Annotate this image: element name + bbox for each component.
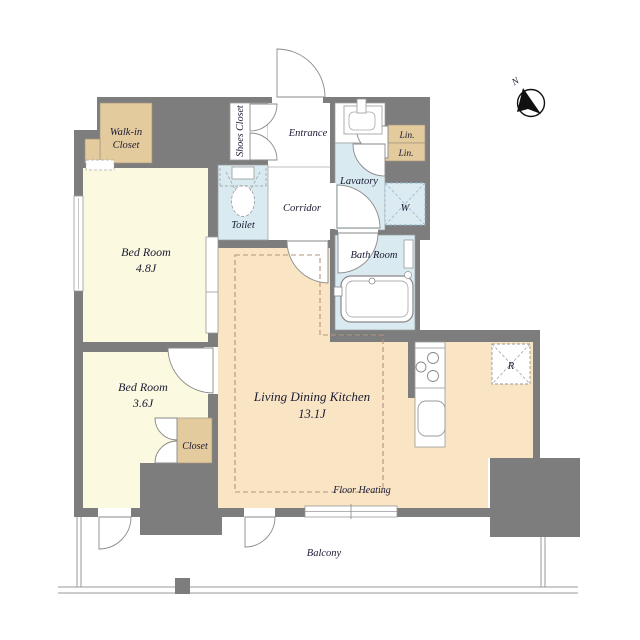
- bedroom2-size-label: 3.6J: [132, 396, 154, 410]
- ldk-balcony-door-opening: [244, 508, 275, 517]
- bath-room-label: Bath Room: [351, 250, 398, 261]
- floor-plan-svg: N Walk-in Closet Bed Room 4.8J Bed Room …: [0, 0, 640, 640]
- bedroom1-name-label: Bed Room: [121, 245, 171, 259]
- entrance-label: Entrance: [288, 128, 328, 139]
- balcony-label: Balcony: [307, 548, 342, 559]
- refrigerator-label: R: [507, 361, 515, 372]
- shoes-closet-label: Shoes Closet: [235, 105, 246, 157]
- lavatory-label: Lavatory: [339, 176, 378, 187]
- walk-in-closet-opening: [86, 160, 114, 170]
- ldk-size-label: 13.1J: [298, 407, 327, 421]
- wall-counter-stub: [408, 342, 415, 398]
- closet-label: Closet: [182, 441, 208, 452]
- kitchen-sink: [418, 401, 445, 436]
- stove-burner-2: [428, 371, 439, 382]
- bedroom1-sliding-door: [206, 237, 218, 333]
- toilet-bowl: [232, 186, 255, 217]
- room-walk-in-closet-ext: [85, 139, 100, 163]
- stove-burner-3: [416, 362, 426, 372]
- washbasin-faucet: [357, 99, 366, 113]
- bathtub-drain: [369, 278, 375, 284]
- bedroom2-balcony-door-swing: [99, 517, 131, 549]
- pillar-southeast: [490, 458, 580, 537]
- room-layer: [83, 96, 533, 508]
- entrance-door-swing: [277, 49, 325, 97]
- linen-upper-label: Lin.: [398, 131, 414, 141]
- ldk-balcony-door-swing: [245, 517, 275, 547]
- bedroom2-balcony-door-opening: [98, 508, 131, 517]
- stove-burner-1: [428, 353, 439, 364]
- balcony-rail-divider: [175, 578, 190, 594]
- wall-kitchen-east: [533, 342, 540, 462]
- corridor-label: Corridor: [283, 203, 322, 214]
- bathtub: [341, 276, 413, 322]
- linen-lower-label: Lin.: [397, 149, 413, 159]
- toilet-label: Toilet: [231, 220, 256, 231]
- room-bedroom2-b: [83, 418, 140, 508]
- floor-heating-label: Floor Heating: [332, 485, 391, 496]
- walk-in-closet-label-2: Closet: [113, 140, 141, 151]
- bedroom2-name-label: Bed Room: [118, 380, 168, 394]
- floor-plan-page: N Walk-in Closet Bed Room 4.8J Bed Room …: [0, 0, 640, 640]
- compass-north-label: N: [510, 76, 522, 89]
- bath-stool: [405, 272, 412, 279]
- lavatory-door-opening: [329, 183, 336, 229]
- walk-in-closet-label-1: Walk-in: [110, 127, 142, 138]
- bath-shelf: [404, 240, 413, 268]
- pillar-mid-south: [140, 463, 222, 535]
- toilet-tank: [232, 167, 254, 179]
- wall-kitchen-north: [415, 330, 540, 342]
- compass: N: [510, 76, 545, 116]
- wall-toilet-south: [214, 240, 268, 248]
- ldk-name-label: Living Dining Kitchen: [253, 389, 370, 404]
- wall-entrance-left: [214, 97, 230, 167]
- bedroom1-size-label: 4.8J: [136, 261, 157, 275]
- washing-machine-label: W: [401, 203, 411, 214]
- bathtub-faucet: [334, 287, 342, 296]
